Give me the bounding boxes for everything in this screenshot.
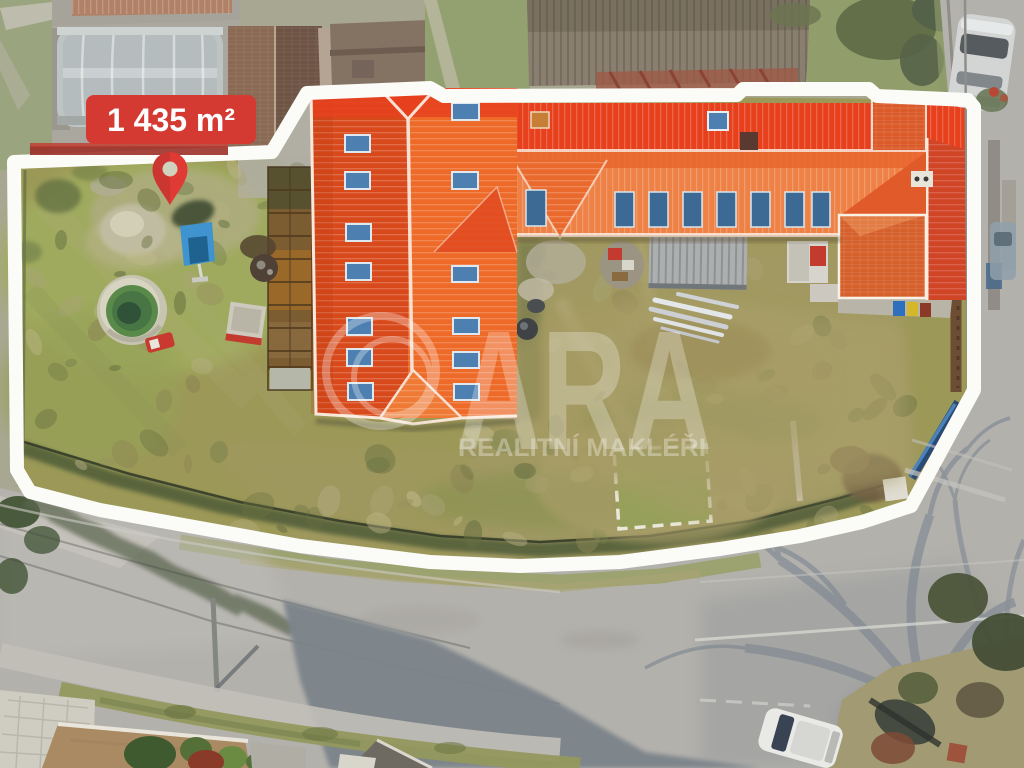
svg-text:1 435 m²: 1 435 m² — [107, 102, 235, 138]
svg-text:REALITNÍ MAKLÉŘI: REALITNÍ MAKLÉŘI — [458, 432, 706, 462]
